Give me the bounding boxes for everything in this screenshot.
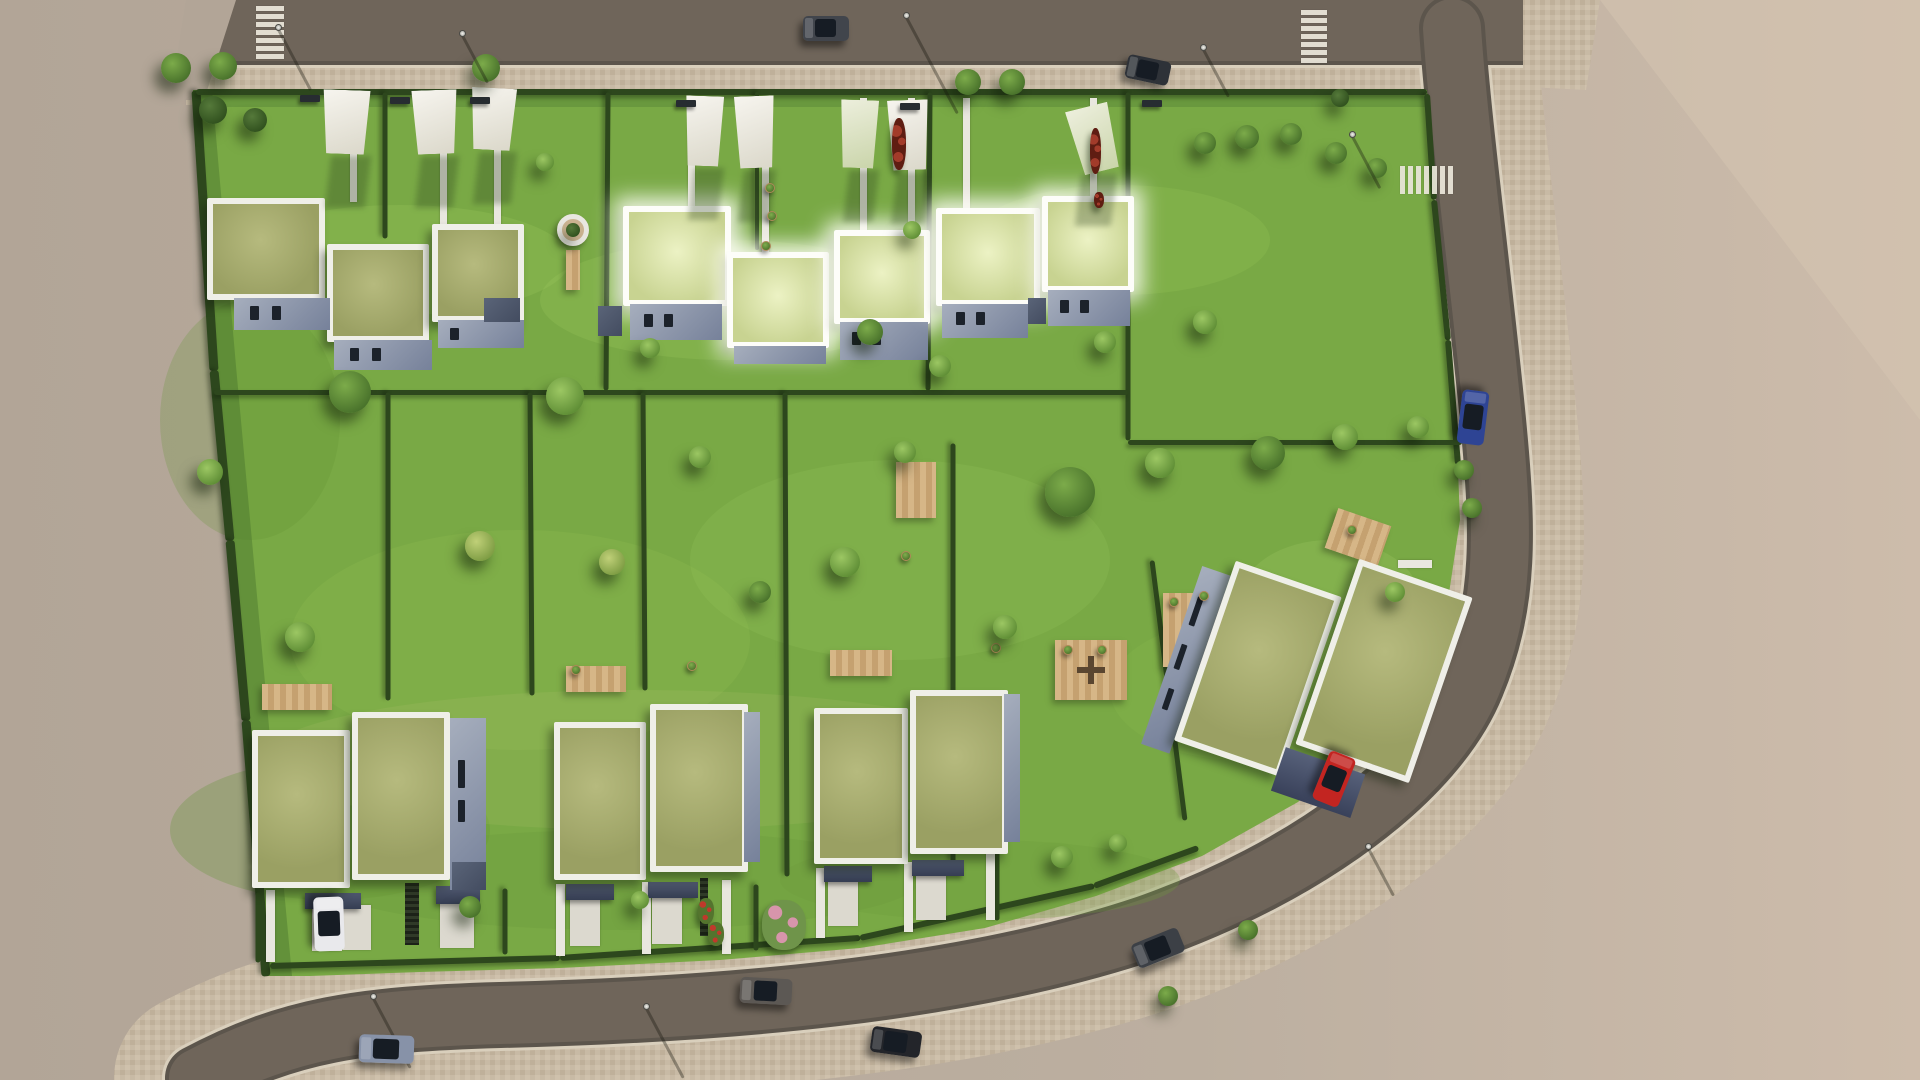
car-glass (317, 911, 340, 937)
crosswalk-stripe (1301, 10, 1327, 15)
green-roof (207, 198, 325, 300)
street-tree (1158, 986, 1178, 1006)
garden-tree (1051, 846, 1073, 868)
car-hood (742, 979, 752, 1000)
planter-plant (572, 666, 580, 674)
sail-shadow (891, 172, 930, 224)
crosswalk-stripe (1424, 166, 1429, 194)
window (458, 760, 465, 788)
footpath (963, 98, 970, 212)
footpath (986, 852, 995, 920)
street-bench (1142, 100, 1162, 107)
car-hood (316, 899, 340, 910)
car-hood (1464, 391, 1487, 403)
sail-shadow (843, 170, 879, 222)
green-roof (910, 690, 1008, 854)
sail-shadow (688, 168, 724, 220)
car-glass (883, 1031, 908, 1053)
driveway-apron (570, 900, 600, 946)
green-roof-sunlit (623, 206, 731, 306)
driveway-apron (828, 882, 858, 926)
street-bench (300, 95, 320, 102)
street-lamp (1200, 44, 1207, 51)
crosswalk-stripe (1400, 166, 1405, 194)
driveway-apron (652, 898, 682, 944)
planter-plant (766, 184, 774, 192)
car-glass (1136, 59, 1159, 81)
hedge-row (383, 92, 388, 238)
car-top-1 (803, 16, 849, 41)
planter-plant (1064, 646, 1072, 654)
planter-plant (688, 662, 696, 670)
crosswalk-stripe (1301, 18, 1327, 23)
garden-tree (1251, 436, 1285, 470)
green-roof (814, 708, 908, 864)
crosswalk-stripe (1301, 26, 1327, 31)
garden-tree (1193, 310, 1217, 334)
house-wall (334, 340, 432, 370)
crosswalk-stripe (256, 54, 284, 59)
planter-plant (992, 644, 1000, 652)
garden-tree (1280, 123, 1302, 145)
garden-tree (999, 69, 1025, 95)
garden-tree (1145, 448, 1175, 478)
garden-tree (1407, 416, 1429, 438)
terrace-deck (896, 462, 936, 518)
window (450, 328, 459, 340)
sail-shadow (325, 156, 371, 208)
green-roof-sunlit (936, 208, 1040, 306)
house-wall-shaded (598, 306, 622, 336)
green-roof-sunlit (834, 230, 930, 324)
window (956, 312, 965, 325)
garden-tree (465, 531, 495, 561)
street-lamp (459, 30, 466, 37)
house-wall (1004, 694, 1020, 842)
privacy-screen (405, 883, 419, 945)
house-wall-shaded (452, 862, 486, 890)
garden-tree (640, 338, 660, 358)
carport-canopy (566, 884, 614, 900)
window (1080, 300, 1089, 313)
hedge-row (256, 892, 261, 962)
garden-tree (197, 459, 223, 485)
house-wall (942, 304, 1028, 338)
car-glass (1143, 935, 1172, 961)
car-glass (753, 981, 778, 1001)
sail-shadow (415, 156, 459, 208)
window (976, 312, 985, 325)
garden-tree (689, 446, 711, 468)
car-hood (872, 1028, 884, 1050)
green-roof (554, 722, 646, 880)
crosswalk-stripe (1301, 34, 1327, 39)
street-lamp (370, 993, 377, 1000)
hedge-row (196, 89, 1427, 95)
carport-canopy (648, 882, 698, 898)
window (1060, 300, 1069, 313)
footpath (556, 884, 565, 956)
hedge-row (386, 392, 391, 700)
hedge-row (1128, 440, 1462, 445)
street-lamp (1365, 843, 1372, 850)
garden-tree (1109, 834, 1127, 852)
garden-tree (830, 547, 860, 577)
street-lamp (643, 1003, 650, 1010)
car-glass (372, 1038, 398, 1060)
garden-tree (161, 53, 191, 83)
table-plank (1088, 656, 1094, 684)
hedge-row (995, 850, 1000, 920)
driveway-apron (343, 905, 371, 950)
garden-tree (631, 891, 649, 909)
garden-tree (1385, 582, 1405, 602)
garden-tree (1235, 125, 1259, 149)
garden-tree (1094, 331, 1116, 353)
house-wall (734, 346, 826, 364)
car-white-driveway (313, 896, 345, 951)
garden-tree (599, 549, 625, 575)
car-glass (1462, 403, 1485, 430)
carport-canopy (824, 866, 872, 882)
flower-bed-darkred (1094, 192, 1104, 208)
garden-tree (536, 153, 554, 171)
crosswalk-stripe (256, 14, 284, 19)
street-bench (470, 97, 490, 104)
crosswalk-stripe (1301, 42, 1327, 47)
flower-bed-red (698, 898, 714, 924)
street-lamp (275, 24, 282, 31)
window (372, 348, 381, 361)
flower-bed-darkred (1090, 128, 1101, 174)
garden-tree (857, 319, 883, 345)
green-roof-sunlit (727, 252, 829, 348)
street-bench (900, 103, 920, 110)
garden-tree (546, 377, 584, 415)
garden-tree (1331, 89, 1349, 107)
footpath (266, 890, 275, 962)
car-hood (805, 18, 813, 38)
garden-tree (1325, 142, 1347, 164)
crosswalk-stripe (1440, 166, 1445, 194)
car-glass (1320, 764, 1348, 794)
terrace-deck (830, 650, 892, 676)
car-silver-bottom (358, 1034, 414, 1064)
planter-plant (768, 212, 776, 220)
hedge-row (754, 884, 759, 950)
garden-tree (955, 69, 981, 95)
footpath (722, 880, 731, 954)
street-lamp (1349, 131, 1356, 138)
sail-shadow (473, 152, 517, 204)
garden-tree (903, 221, 921, 239)
garden-tree (1332, 424, 1358, 450)
car-glass (815, 19, 836, 38)
garden-tree (1045, 467, 1095, 517)
crosswalk-stripe (1301, 50, 1327, 55)
planter-plant (1170, 598, 1178, 606)
house-wall (234, 298, 330, 330)
garden-tree (459, 896, 481, 918)
garden-tree (894, 441, 916, 463)
crosswalk (1400, 166, 1452, 194)
crosswalk-stripe (256, 6, 284, 11)
house-wall (744, 712, 760, 862)
window (644, 314, 653, 327)
crosswalk-stripe (256, 38, 284, 43)
window (458, 800, 465, 822)
street-tree (1462, 498, 1482, 518)
house-wall-shaded (484, 298, 520, 322)
green-roof (252, 730, 350, 888)
window (664, 314, 673, 327)
garden-tree (199, 96, 227, 124)
flower-bed-darkred (892, 118, 906, 170)
garden-tree (285, 622, 315, 652)
garden-tree (993, 615, 1017, 639)
planter-cypress (566, 223, 580, 237)
garden-tree (329, 371, 371, 413)
crosswalk-stripe (1301, 58, 1327, 63)
planter-plant (1098, 646, 1106, 654)
green-roof (327, 244, 429, 342)
garden-tree (243, 108, 267, 132)
green-roof (352, 712, 450, 880)
terrace-deck (566, 250, 580, 290)
terrace-deck (262, 684, 332, 710)
flower-bed-red (708, 922, 724, 946)
street-tree (1454, 460, 1474, 480)
planter-plant (762, 242, 770, 250)
green-roof (650, 704, 748, 872)
crosswalk-stripe (1448, 166, 1453, 194)
window (350, 348, 359, 361)
driveway-apron (916, 876, 946, 920)
garden-tree (1194, 132, 1216, 154)
car-hood (360, 1037, 371, 1060)
crosswalk-stripe (1432, 166, 1437, 194)
crosswalk-stripe (256, 46, 284, 51)
garden-tree (929, 355, 951, 377)
aerial-site-plan-render (0, 0, 1920, 1080)
hedge-row (503, 888, 508, 954)
carport-canopy (912, 860, 964, 876)
crosswalk-stripe (1408, 166, 1413, 194)
car-gray-bottom (739, 977, 792, 1006)
crosswalk (1301, 10, 1327, 62)
planter-plant (1200, 592, 1208, 600)
street-bench (390, 97, 410, 104)
garden-tree (209, 52, 237, 80)
crosswalk-stripe (1416, 166, 1421, 194)
garden-tree (749, 581, 771, 603)
window (272, 306, 281, 320)
planter-plant (1348, 526, 1356, 534)
window (250, 306, 259, 320)
house-wall-shaded (1028, 298, 1046, 324)
flower-bed-pink (762, 900, 806, 950)
planter-plant (902, 552, 910, 560)
street-lamp (903, 12, 910, 19)
street-bench (676, 100, 696, 107)
street-tree (1238, 920, 1258, 940)
